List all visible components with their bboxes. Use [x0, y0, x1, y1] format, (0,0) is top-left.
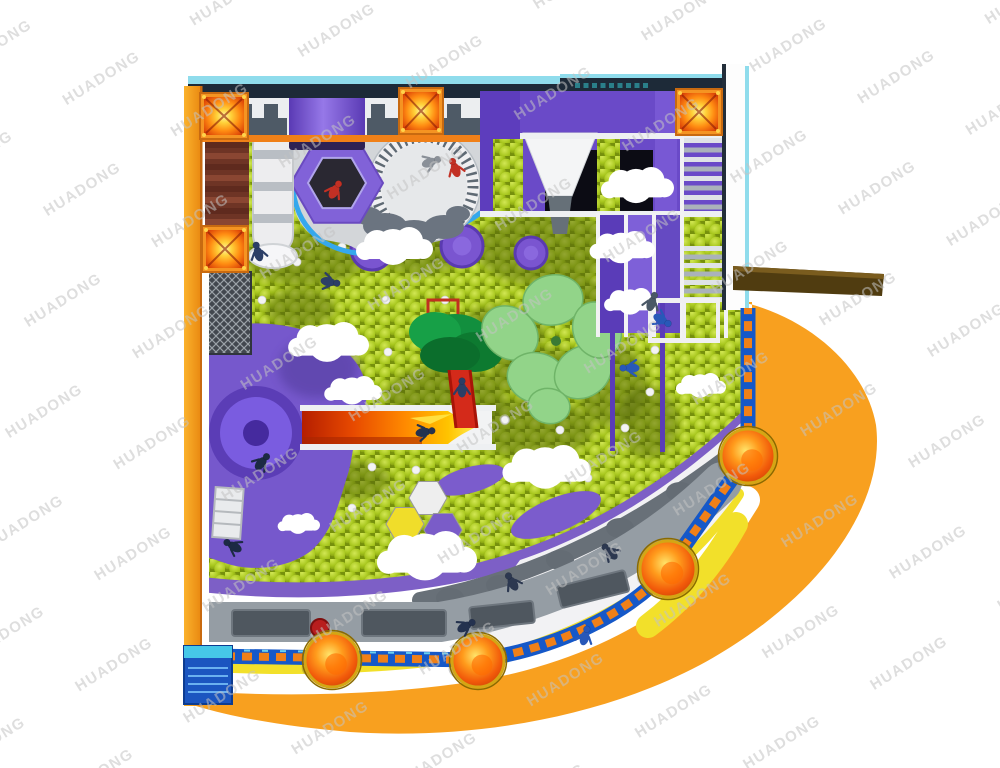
- stair-tread: [684, 205, 724, 210]
- white-ball: [368, 463, 376, 471]
- castle-tooth: [447, 104, 461, 120]
- floor-mat: [362, 610, 446, 636]
- watermark-text: HUADONG: [886, 522, 970, 583]
- vent-dashes: [575, 83, 648, 88]
- watermark-text: HUADONG: [91, 523, 175, 584]
- stair-tread: [684, 263, 724, 268]
- white-ball: [258, 296, 266, 304]
- watermark-text: HUADONG: [994, 553, 1000, 614]
- fire-ball-core: [472, 655, 493, 676]
- watermark-text: HUADONG: [397, 729, 481, 768]
- castle-wall: [367, 118, 399, 136]
- stair-step: [205, 175, 249, 181]
- watermark-text: HUADONG: [944, 189, 1000, 250]
- fire-panel: [202, 226, 248, 272]
- stair-tread: [684, 195, 724, 200]
- castle-tooth: [371, 104, 385, 120]
- watermark-text: HUADONG: [0, 603, 48, 664]
- lane-divider: [624, 213, 628, 337]
- watermark-text: HUADONG: [505, 760, 589, 768]
- watermark-text: HUADONG: [295, 0, 379, 61]
- white-ball: [651, 346, 659, 354]
- stair-tread: [684, 167, 724, 172]
- stair-tread: [684, 176, 724, 181]
- watermark-text: HUADONG: [0, 16, 35, 77]
- fire-panel-bolt: [242, 133, 246, 137]
- stair-tread: [684, 157, 724, 162]
- cloud-base: [280, 523, 315, 531]
- stair-tread: [684, 272, 724, 277]
- carousel-tower-hub: [243, 420, 269, 446]
- vent-dash: [618, 83, 623, 88]
- fire-panel-bolt: [401, 128, 405, 132]
- stair-step: [205, 186, 249, 192]
- cloud-base: [606, 184, 667, 197]
- fire-panel-bolt: [678, 91, 682, 95]
- fire-ball-core: [325, 653, 347, 675]
- flame-ember-base: [302, 437, 422, 444]
- vent-dash: [609, 83, 614, 88]
- watermark-text: HUADONG: [0, 714, 29, 768]
- fire-panel-bolt: [716, 91, 720, 95]
- stair-step: [205, 142, 249, 148]
- ball-column: [493, 139, 523, 213]
- fire-panel-bolt: [437, 90, 441, 94]
- watermark-text: HUADONG: [855, 46, 939, 107]
- watermark-text: HUADONG: [638, 0, 722, 44]
- stair-tread: [684, 186, 724, 191]
- watermark-text: HUADONG: [2, 381, 86, 442]
- vent-dash: [635, 83, 640, 88]
- castle-tooth: [264, 104, 278, 120]
- vent-dash: [626, 83, 631, 88]
- golden-fire-ball: [637, 539, 699, 600]
- fire-panel-bolt: [204, 266, 208, 270]
- vent-dash: [601, 83, 606, 88]
- stair-tread: [684, 246, 724, 251]
- watermark-text: HUADONG: [963, 78, 1000, 139]
- white-ball: [621, 424, 629, 432]
- fire-panel-bolt: [242, 228, 246, 232]
- fire-panel-bolt: [678, 129, 682, 133]
- stair-tread: [684, 138, 724, 143]
- watermark-text: HUADONG: [740, 712, 824, 768]
- watermark-text: HUADONG: [60, 48, 144, 109]
- pit-shadow-patch: [265, 288, 335, 328]
- stair-step: [205, 164, 249, 170]
- orange-wall-strip: [184, 86, 202, 706]
- white-ball: [412, 466, 420, 474]
- floor-mat: [232, 610, 310, 636]
- fire-panel-bolt: [401, 90, 405, 94]
- watermark-text: HUADONG: [530, 0, 614, 13]
- fire-panel-bolt: [242, 266, 246, 270]
- playground-floorplan-render: HUADONGHUADONGHUADONGHUADONGHUADONGHUADO…: [0, 0, 1000, 768]
- fire-panel-bolt: [437, 128, 441, 132]
- stair-tread: [684, 148, 724, 153]
- figure-body: [458, 383, 467, 398]
- fire-panel-bolt: [202, 95, 206, 99]
- white-ball: [556, 426, 564, 434]
- white-ball: [646, 388, 654, 396]
- watermark-text: HUADONG: [53, 745, 137, 768]
- watermark-text: HUADONG: [982, 0, 1000, 28]
- watermark-text: HUADONG: [867, 633, 951, 694]
- watermark-text: HUADONG: [110, 412, 194, 473]
- watermark-text: HUADONG: [187, 0, 271, 29]
- slide-lane: [598, 215, 626, 333]
- render-canvas: HUADONGHUADONGHUADONGHUADONGHUADONGHUADO…: [0, 0, 1000, 768]
- stair-step: [205, 219, 249, 225]
- canopy-hub: [551, 336, 561, 346]
- figure-head: [620, 365, 627, 372]
- white-ball: [384, 348, 392, 356]
- stair-step: [205, 153, 249, 159]
- watermark-text: HUADONG: [41, 159, 125, 220]
- cloud-base: [361, 245, 425, 259]
- watermark-text: HUADONG: [925, 300, 1000, 361]
- figure-head: [459, 378, 466, 385]
- tree-canopy-shade: [420, 337, 480, 373]
- vent-dash: [643, 83, 648, 88]
- fire-panel-bolt: [204, 228, 208, 232]
- orange-trim-line: [202, 135, 520, 142]
- watermark-text: HUADONG: [72, 634, 156, 695]
- watermark-text: HUADONG: [21, 270, 105, 331]
- watermark-text: HUADONG: [0, 127, 16, 188]
- lane-divider: [596, 213, 600, 337]
- watermark-text: HUADONG: [905, 411, 989, 472]
- fire-panel: [399, 88, 443, 134]
- mushroom-stool-cap: [453, 237, 472, 256]
- vent-dash: [592, 83, 597, 88]
- fire-panel-bolt: [202, 133, 206, 137]
- castle-wall: [443, 118, 480, 136]
- watermark-text: HUADONG: [746, 15, 830, 76]
- watermark-text: HUADONG: [836, 157, 920, 218]
- fire-panel-bolt: [716, 129, 720, 133]
- watermark-text: HUADONG: [0, 492, 67, 553]
- mushroom-stool-cap: [524, 246, 538, 260]
- stair-tread: [684, 255, 724, 260]
- vent-dash: [584, 83, 589, 88]
- fire-ball-core: [661, 562, 683, 584]
- figure-body: [625, 364, 640, 373]
